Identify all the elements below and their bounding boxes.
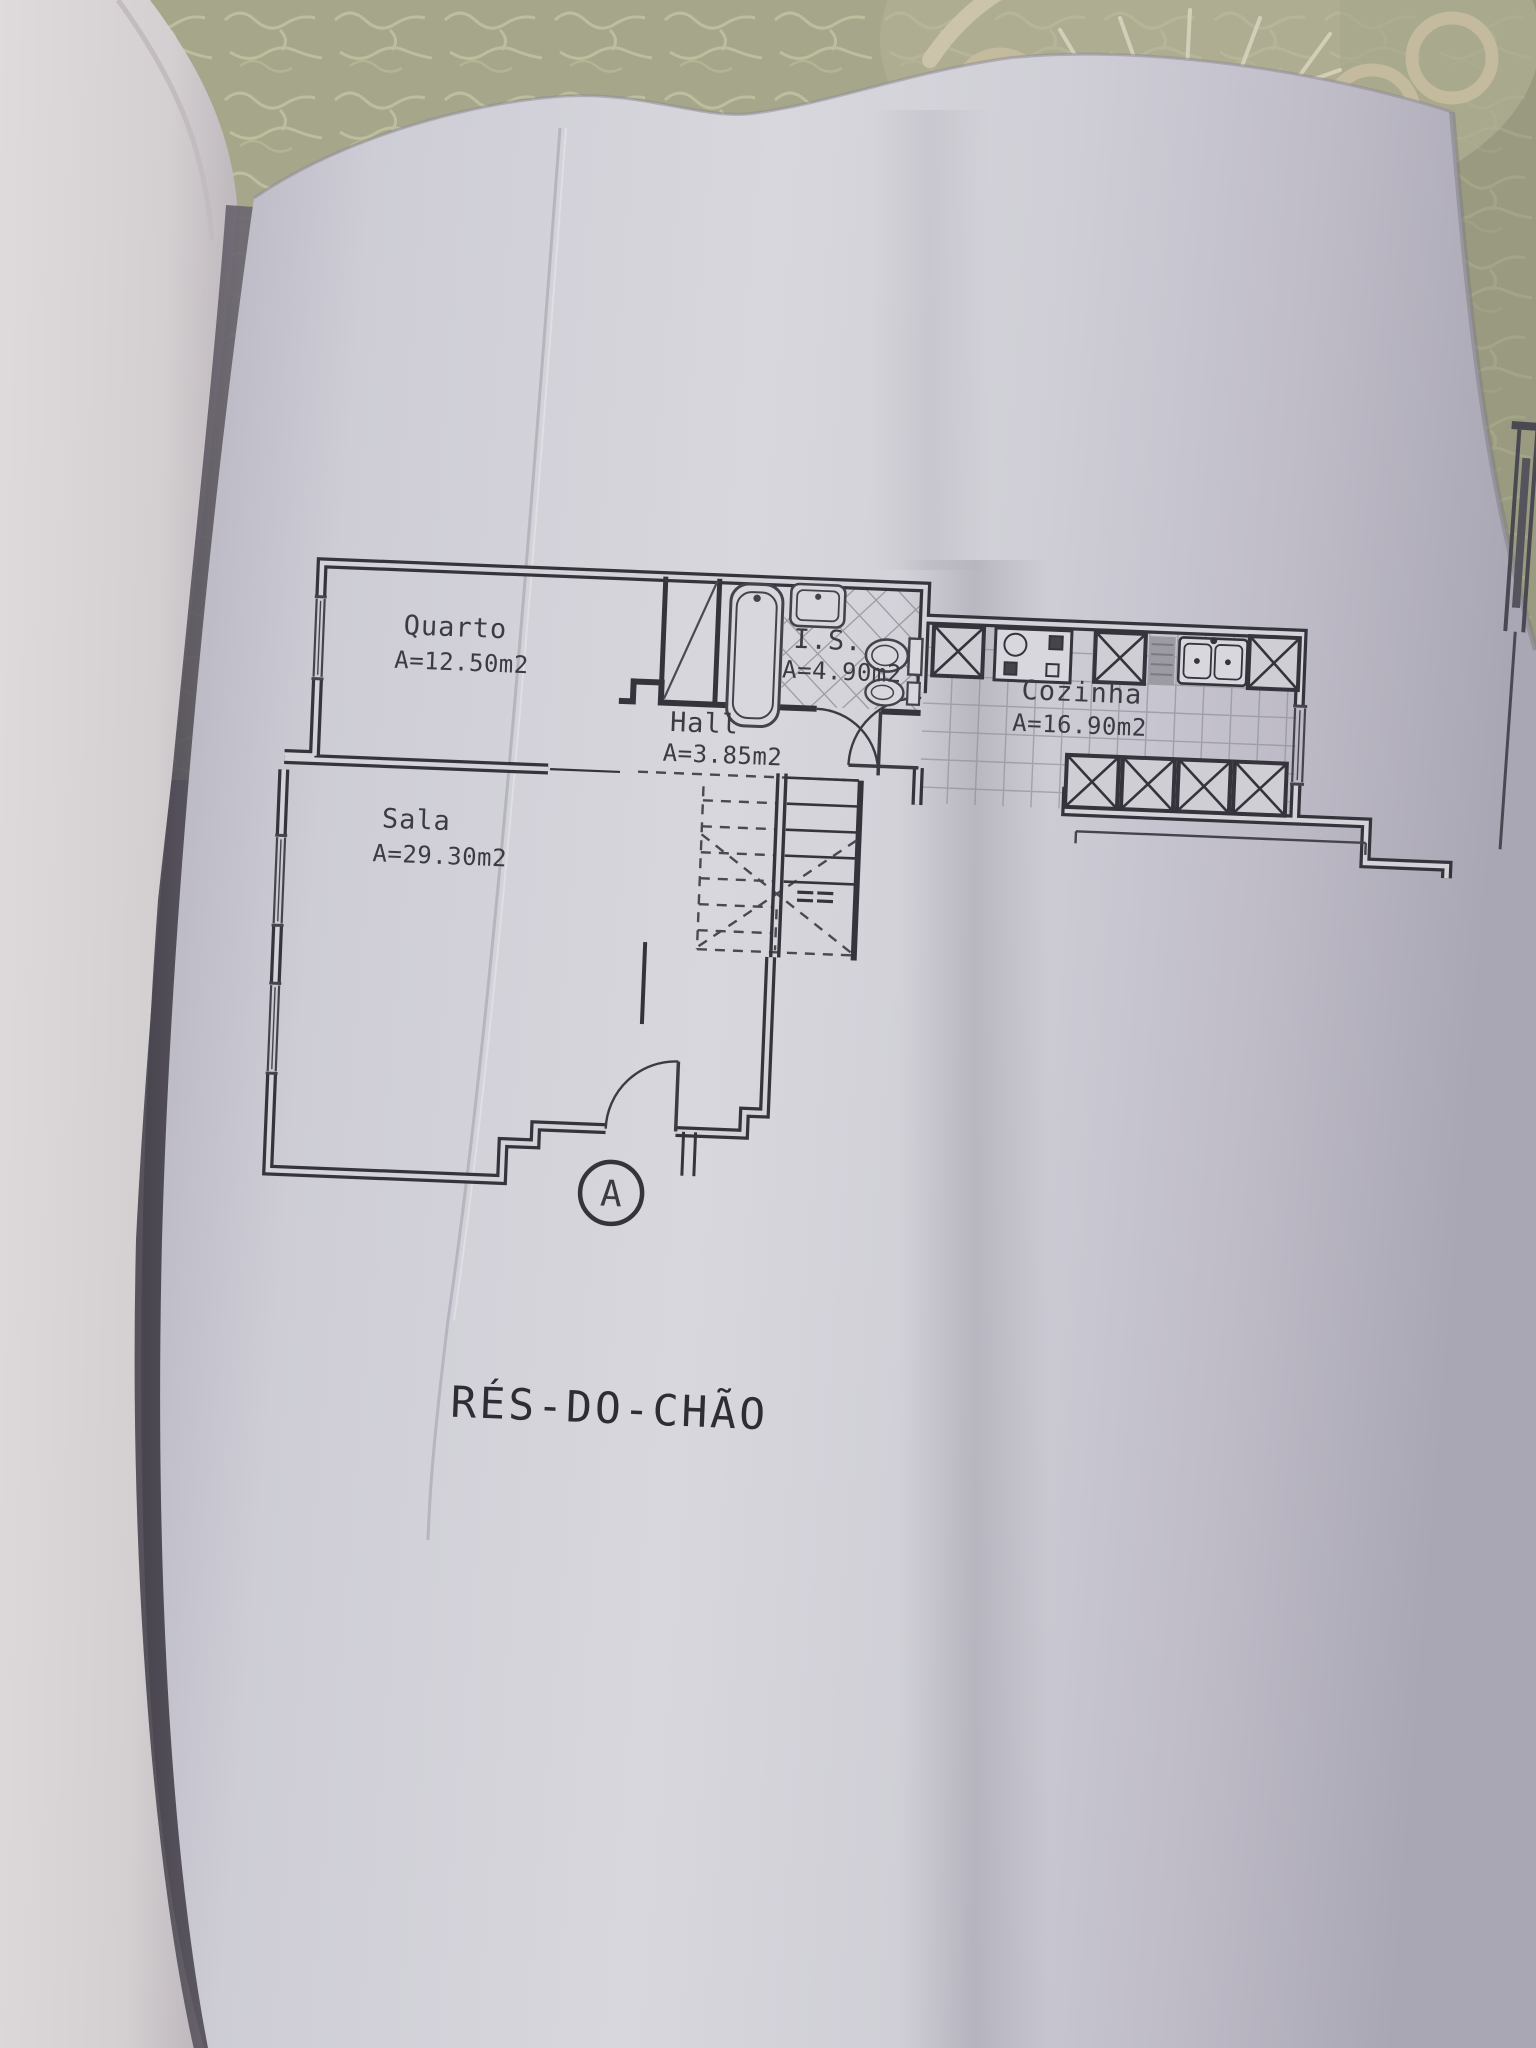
room-label-is: I.S. — [793, 624, 863, 658]
room-area-cozinha: A=16.90m2 — [1012, 709, 1148, 742]
section-marker-letter: A — [599, 1174, 623, 1216]
entrance-wall-stubs — [682, 1132, 696, 1176]
room-label-sala: Sala — [381, 803, 451, 837]
room-label-hall: Hall — [669, 707, 739, 741]
room-area-hall: A=3.85m2 — [662, 739, 783, 772]
window-sala-2 — [266, 983, 282, 1073]
bathtub — [726, 583, 784, 727]
door-threshold-quarto — [550, 769, 620, 772]
window-quarto — [312, 597, 327, 679]
room-label-quarto: Quarto — [403, 610, 508, 645]
floor-plan: A Quarto A=12.50m2 I.S. A=4.90m2 Hall A=… — [188, 515, 1497, 1565]
cabinet-x-box — [1094, 632, 1146, 684]
stair-stringer — [771, 773, 786, 957]
room-area-is: A=4.90m2 — [782, 655, 903, 688]
counter-hatch — [1148, 636, 1176, 685]
plan-title: RÉS-DO-CHÃO — [450, 1377, 770, 1441]
washbasin — [790, 584, 846, 628]
cabinet-x-box — [1248, 636, 1300, 690]
room-area-sala: A=29.30m2 — [372, 839, 508, 872]
photo-of-floorplan-page: A Quarto A=12.50m2 I.S. A=4.90m2 Hall A=… — [0, 0, 1536, 2048]
cabinet-x-box — [1121, 757, 1175, 811]
cabinet-x-box — [932, 625, 984, 677]
room-label-cozinha: Cozinha — [1021, 675, 1143, 711]
section-marker: A — [579, 1161, 643, 1225]
cabinet-x-box — [1177, 759, 1231, 813]
kitchen-sink — [1178, 636, 1248, 686]
stair-break-marks — [797, 892, 833, 901]
door-entrance — [606, 1059, 679, 1132]
room-area-quarto: A=12.50m2 — [394, 646, 530, 679]
stair-dashed-outline — [631, 772, 859, 956]
cabinet-x-box — [1065, 755, 1119, 809]
stair-treads-solid — [784, 778, 859, 885]
staircase — [628, 768, 859, 1033]
kitchen-outer-wall-face — [1076, 831, 1366, 855]
window-sala-1 — [272, 835, 288, 925]
cabinet-x-box — [1233, 762, 1287, 816]
stair-lower-wall — [642, 942, 645, 1024]
closet-diagonal — [664, 579, 718, 701]
page-fold-shadow-top — [870, 110, 990, 570]
